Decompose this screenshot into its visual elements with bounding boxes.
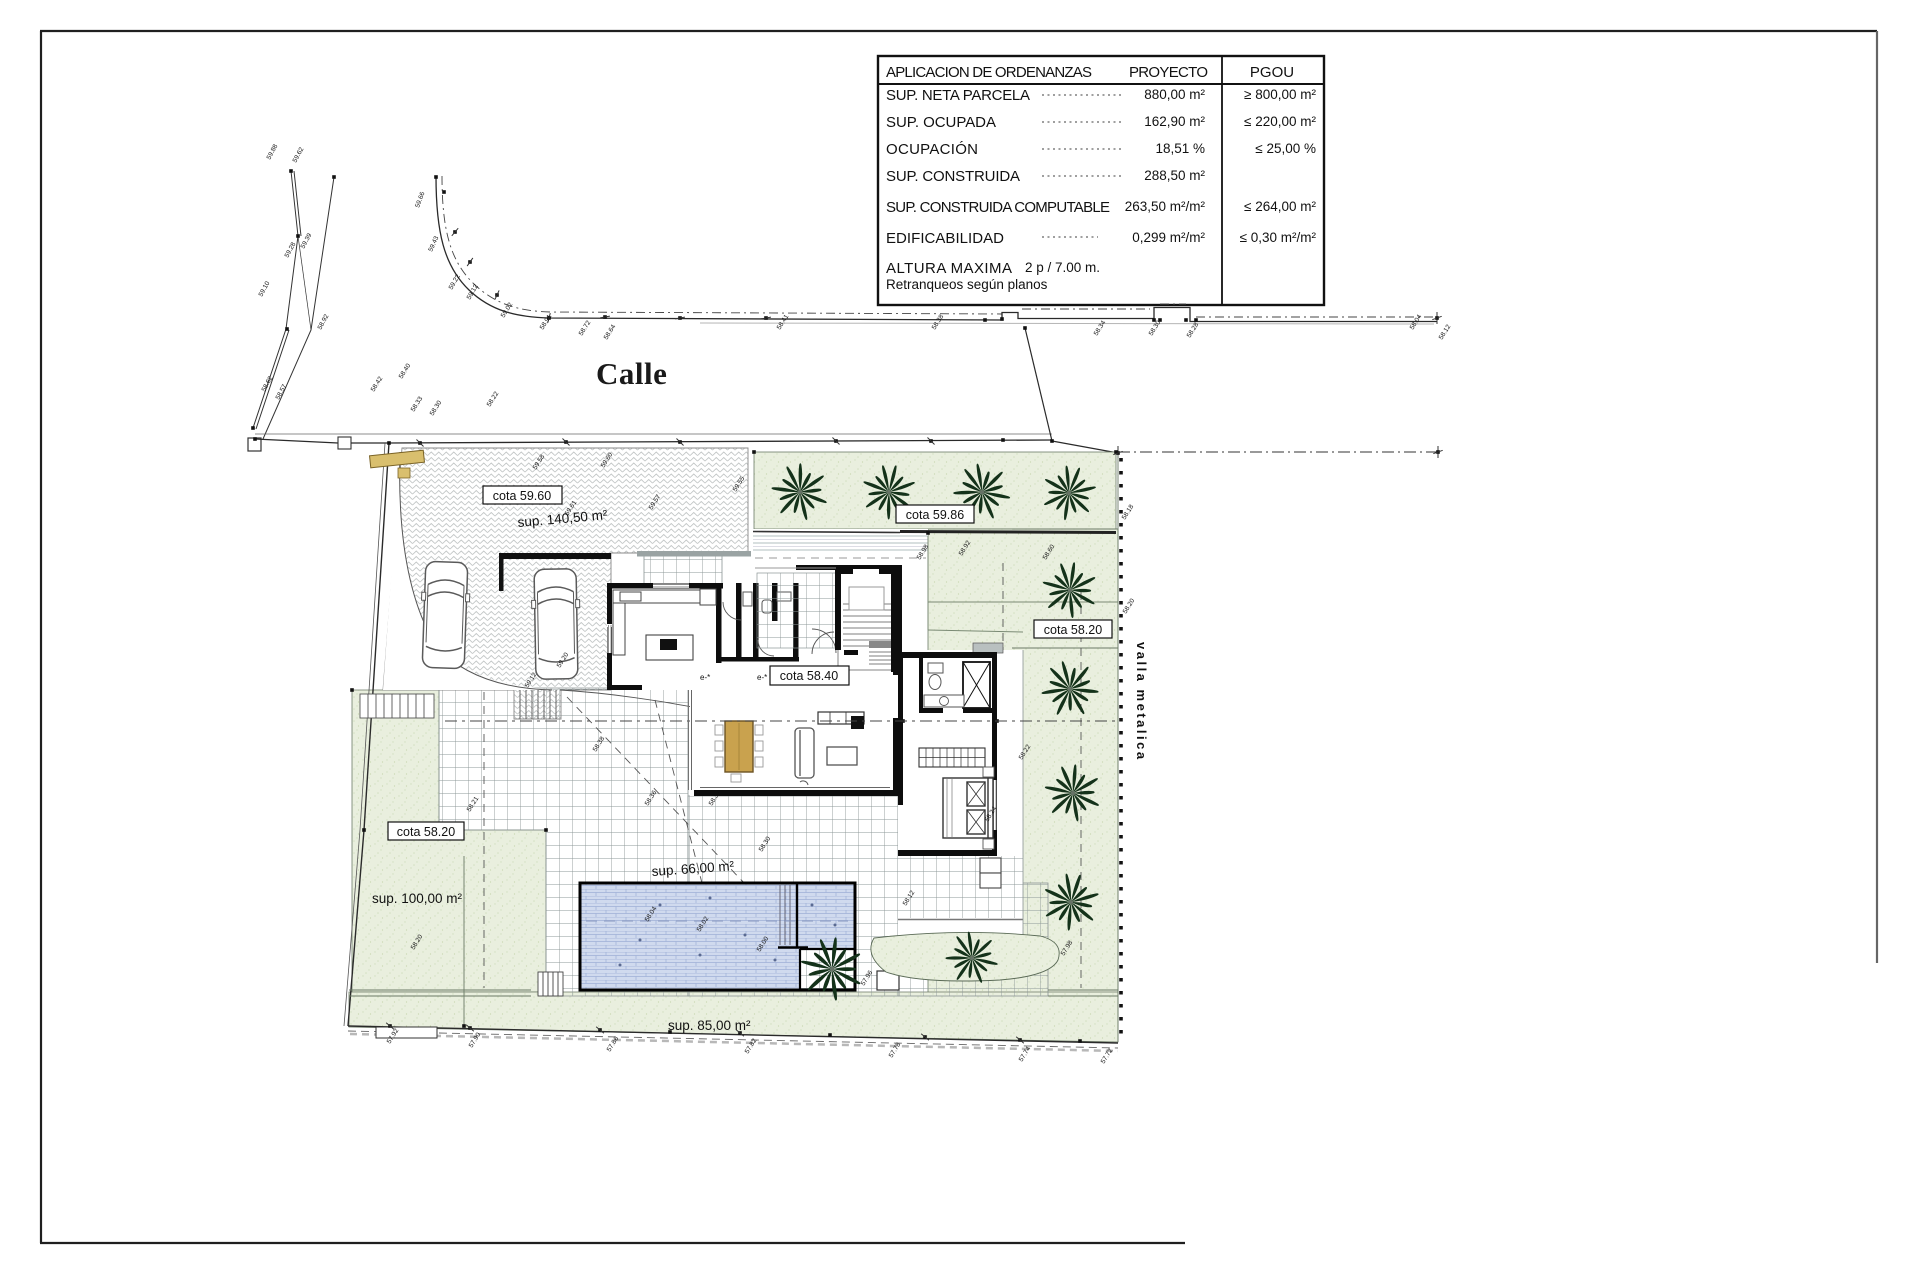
svg-text:e-*: e-* <box>700 673 710 682</box>
svg-text:ALTURA MAXIMA: ALTURA MAXIMA <box>886 260 1012 277</box>
svg-text:valla metalica: valla metalica <box>1134 642 1149 762</box>
svg-text:2 p / 7.00 m.: 2 p / 7.00 m. <box>1025 260 1100 275</box>
svg-text:cota 58.40: cota 58.40 <box>780 669 838 683</box>
svg-text:PROYECTO: PROYECTO <box>1129 64 1208 81</box>
svg-text:288,50 m²: 288,50 m² <box>1144 168 1205 183</box>
svg-text:≤ 264,00 m²: ≤ 264,00 m² <box>1244 199 1316 214</box>
svg-text:PGOU: PGOU <box>1250 64 1294 81</box>
svg-text:Retranqueos según planos: Retranqueos según planos <box>886 277 1048 292</box>
svg-text:e-*: e-* <box>757 673 767 682</box>
svg-text:cota 58.20: cota 58.20 <box>1044 623 1102 637</box>
svg-text:162,90 m²: 162,90 m² <box>1144 114 1205 129</box>
svg-text:cota 58.20: cota 58.20 <box>397 825 455 839</box>
svg-text:EDIFICABILIDAD: EDIFICABILIDAD <box>886 230 1004 247</box>
svg-text:Calle: Calle <box>596 356 667 391</box>
svg-text:≥ 800,00 m²: ≥ 800,00 m² <box>1244 87 1316 102</box>
svg-text:cota 59.86: cota 59.86 <box>906 508 964 522</box>
svg-text:SUP. OCUPADA: SUP. OCUPADA <box>886 114 996 131</box>
svg-text:APLICACION DE ORDENANZAS: APLICACION DE ORDENANZAS <box>886 64 1092 81</box>
svg-text:SUP. CONSTRUIDA: SUP. CONSTRUIDA <box>886 168 1020 185</box>
svg-text:SUP. CONSTRUIDA COMPUTABLE: SUP. CONSTRUIDA COMPUTABLE <box>886 199 1110 216</box>
svg-text:263,50 m²/m²: 263,50 m²/m² <box>1125 199 1206 214</box>
svg-text:≤ 0,30 m²/m²: ≤ 0,30 m²/m² <box>1240 230 1317 245</box>
svg-text:sup. 100,00 m²: sup. 100,00 m² <box>372 891 463 906</box>
svg-text:cota 59.60: cota 59.60 <box>493 489 551 503</box>
svg-text:≤ 25,00 %: ≤ 25,00 % <box>1255 141 1316 156</box>
svg-text:OCUPACIÓN: OCUPACIÓN <box>886 141 978 158</box>
svg-text:≤ 220,00 m²: ≤ 220,00 m² <box>1244 114 1316 129</box>
svg-text:SUP. NETA PARCELA: SUP. NETA PARCELA <box>886 87 1030 104</box>
svg-text:0,299 m²/m²: 0,299 m²/m² <box>1132 230 1205 245</box>
svg-text:18,51 %: 18,51 % <box>1155 141 1205 156</box>
svg-text:880,00 m²: 880,00 m² <box>1144 87 1205 102</box>
svg-text:sup. 85,00 m²: sup. 85,00 m² <box>668 1018 751 1033</box>
